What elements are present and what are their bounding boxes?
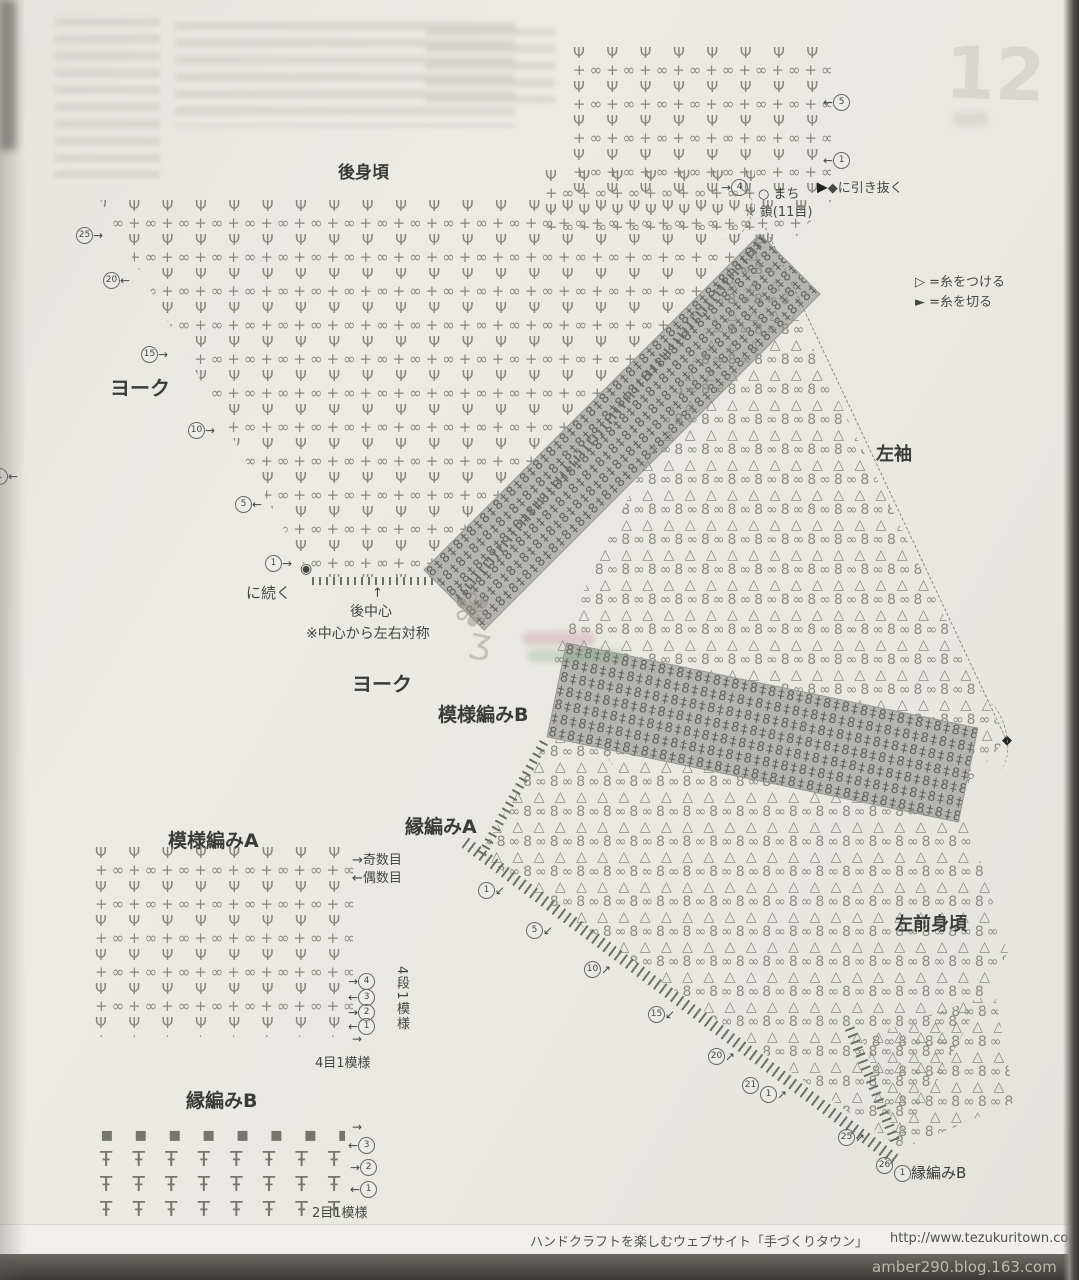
row-marker-5: 5← — [235, 494, 262, 513]
bottom-row-arrow: → — [352, 1032, 362, 1046]
repeat-2sts-note: 2目1模様 — [312, 1202, 368, 1221]
row-marker-21: 21 — [742, 1075, 759, 1094]
label-left-sleeve: 左袖 — [876, 440, 912, 466]
label-edge-a: 縁編みA — [405, 812, 477, 839]
continue-note: に続く — [246, 582, 291, 603]
label-pattern-a: 模様編みA — [168, 826, 259, 853]
chart-back-swatch: Ψ Ψ Ψ Ψ Ψ Ψ Ψ Ψ Ψ Ψ Ψ Ψ Ψ Ψ Ψ Ψ Ψ Ψ Ψ Ψ … — [573, 45, 831, 193]
row-marker-10: 10↗ — [584, 959, 611, 978]
label-pattern-b: 模様編みB — [438, 700, 528, 727]
footer: ハンドクラフトを楽しむウェブサイト「手づくりタウン」 http://www.te… — [530, 1231, 1079, 1250]
row-marker-1: ←1 — [823, 150, 850, 169]
row-marker-5: 5↙ — [526, 920, 553, 939]
chain-note: ☆ 鎖(11目) — [744, 201, 812, 220]
up-arrow-icon: ↑ — [372, 586, 383, 601]
front-left-edging-ticks — [478, 740, 548, 856]
scanned-crochet-pattern-page: 12 Ψ Ψ Ψ Ψ Ψ Ψ Ψ Ψ Ψ Ψ Ψ Ψ Ψ Ψ Ψ Ψ Ψ Ψ Ψ… — [0, 0, 1079, 1280]
chart-edge-b: ▪ ▪ ▪ ▪ ▪ ▪ ▪ ▪ ▪ ▪ ▪ ▪ ▪ ▪ ▪ ▪ Ŧ Ŧ Ŧ Ŧ … — [100, 1122, 345, 1222]
row-marker-5: ←5 — [823, 92, 850, 111]
legend-attach-yarn: ▷ =糸をつける — [915, 271, 1005, 290]
chart-pattern-a: Ψ Ψ Ψ Ψ Ψ Ψ Ψ Ψ Ψ Ψ Ψ Ψ Ψ Ψ Ψ Ψ Ψ Ψ Ψ Ψ … — [95, 845, 353, 1037]
watermark-text-blob — [528, 650, 623, 662]
row-marker-2: →2 — [350, 1157, 377, 1176]
label-yoke: ヨーク — [110, 372, 170, 401]
slip-stitch-note: ▶◆に引き抜く — [817, 177, 903, 196]
back-center-note: 後中心 — [350, 601, 392, 621]
row-marker-1: 1→ — [265, 553, 292, 572]
label-edge-b: 縁編みB — [186, 1086, 257, 1113]
row-marker-10: 10→ — [188, 420, 215, 439]
symmetry-note: ※中心から左右対称 — [306, 623, 430, 643]
edge-a-ticks — [462, 838, 899, 1165]
band-pattern-b: 8‡8‡8‡8‡8‡8‡8‡8‡8‡8‡8‡8‡8‡8‡8‡8‡8‡8‡8‡8‡… — [548, 644, 978, 822]
ghost-caption-blob — [953, 112, 987, 126]
label-edge-b-corner: 縁編みB — [911, 1164, 966, 1182]
left-gutter-dark-patch — [0, 0, 16, 150]
repeat-4rows-note: 4段1模様 — [392, 966, 411, 1038]
label-back-body: 後身頃 — [338, 158, 389, 183]
blog-watermark-url: amber290.blog.163.com — [872, 1258, 1057, 1276]
row-marker-25: 25→ — [76, 225, 103, 244]
cut-yarn-icon: ▶ — [817, 180, 828, 196]
footer-site-text: ハンドクラフトを楽しむウェブサイト「手づくりタウン」 — [530, 1231, 868, 1250]
row-marker-3: ←3 — [348, 1135, 375, 1154]
label-yoke: ヨーク — [352, 668, 412, 697]
row-marker-1: 1↗ — [760, 1084, 787, 1103]
watermark-text-blob — [523, 632, 595, 645]
even-rows-note: ←偶数目 — [352, 867, 402, 886]
edge-b-start-marker: 1縁編みB — [894, 1162, 966, 1183]
row-marker-1: 1↙ — [478, 880, 505, 899]
chart-pattern-b: 8‡8‡8‡8‡8‡8‡8‡8‡8‡8‡8‡8‡8‡8‡8‡8‡8‡8‡8‡8‡… — [548, 644, 978, 822]
row-marker-26: 26 — [876, 1155, 893, 1174]
ghost-page-number: 12 — [944, 30, 1047, 117]
row-marker-20: 20↗ — [708, 1046, 735, 1065]
row-marker-15: 15→ — [141, 344, 168, 363]
footer-url: http://www.tezukuritown.com — [890, 1231, 1079, 1250]
bleedthrough-text-smudge — [425, 28, 555, 103]
repeat-4sts-note: 4目1模様 — [315, 1052, 371, 1071]
label-left-front: 左前身頃 — [895, 910, 967, 936]
right-page-edge — [1063, 0, 1079, 1280]
row-marker-15: 15↙ — [648, 1004, 675, 1023]
row-marker-1: ←1 — [350, 1179, 377, 1198]
continue-dot-icon: ◉ — [300, 561, 312, 577]
gusset-note: ○ まち — [758, 183, 799, 202]
left-gutter-shadow — [0, 0, 26, 1280]
row-marker-25: 25↗ — [838, 1127, 865, 1146]
yoke-sleeve-edging-ticks — [455, 235, 767, 601]
legend-cut-yarn: ► =糸を切る — [915, 291, 992, 310]
row-marker-20: 20← — [103, 270, 130, 289]
odd-rows-note: →奇数目 — [352, 849, 402, 868]
bleedthrough-text-smudge — [55, 18, 160, 178]
top-row-arrow: → — [352, 1120, 362, 1134]
